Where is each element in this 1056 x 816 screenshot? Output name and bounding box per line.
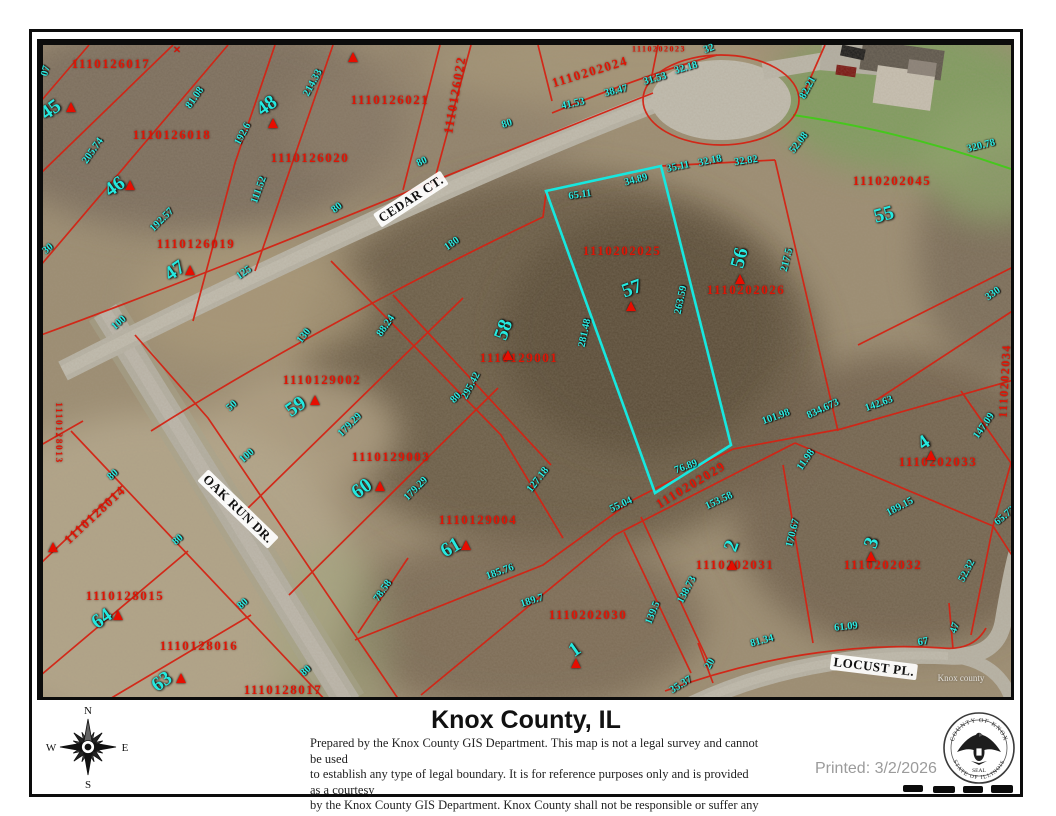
- parcel-number-label: 1110202023: [632, 45, 686, 54]
- dimension-label: 125: [234, 264, 253, 282]
- compass-n: N: [84, 705, 92, 717]
- parcel-number-label: 1110129004: [439, 512, 518, 528]
- compass-rose-icon: N S E W: [40, 704, 136, 790]
- parcel-number-label: 1110126017: [72, 56, 151, 72]
- cutoff-text-fragment: [963, 786, 983, 793]
- dimension-label: 834.673: [805, 397, 841, 421]
- parcel-number-label: 1110202026: [707, 282, 786, 298]
- survey-marker-triangle: ▲: [66, 100, 76, 115]
- dimension-label: 31.53: [642, 70, 668, 87]
- parcel-number-label: 1110202025: [583, 243, 662, 259]
- lot-number-label: 60: [347, 474, 377, 504]
- dimension-label: 67: [917, 636, 929, 649]
- parcel-number-label: 1110126021: [351, 92, 430, 108]
- dimension-label: 100: [109, 314, 128, 333]
- dimension-label: 111.52: [249, 175, 269, 205]
- dimension-label: 80: [500, 117, 513, 131]
- dimension-label: 80: [298, 663, 313, 678]
- dimension-label: 189.7: [519, 592, 545, 610]
- disclaimer-line: by the Knox County GIS Department. Knox …: [310, 798, 760, 816]
- map-title: Knox County, IL: [431, 706, 621, 735]
- survey-marker-triangle: ▲: [348, 50, 358, 65]
- dimension-label: 32: [702, 42, 716, 56]
- aerial-map: 1110126017111012601811101260191110126020…: [37, 39, 1014, 700]
- dimension-label: 100: [237, 447, 256, 466]
- survey-marker-triangle: ▲: [310, 393, 320, 408]
- dimension-label: 263.59: [673, 285, 690, 316]
- parcel-number-label: 1110129002: [283, 372, 362, 388]
- dimension-label: 80: [235, 596, 250, 611]
- dimension-label: 147.09: [971, 411, 997, 441]
- dimension-label: 78.58: [372, 578, 395, 604]
- street-name-label: CEDAR CT.: [373, 170, 449, 227]
- map-labels: 1110126017111012601811101260191110126020…: [40, 42, 1011, 697]
- survey-marker-triangle: ▲: [113, 608, 123, 623]
- dimension-label: 81.08: [184, 85, 207, 111]
- lot-number-label: 55: [871, 201, 896, 228]
- parcel-number-label: 1110202030: [549, 607, 628, 623]
- dimension-label: 35.37: [668, 674, 694, 696]
- cross-marker: ×: [173, 43, 181, 59]
- dimension-label: 52.32: [957, 558, 978, 584]
- survey-marker-triangle: ▲: [461, 538, 471, 553]
- compass-s: S: [85, 779, 91, 790]
- dimension-label: 185.76: [485, 562, 516, 582]
- compass-w: W: [46, 742, 57, 754]
- parcel-number-label: 1110128014: [61, 482, 129, 547]
- lot-number-label: 63: [147, 667, 177, 697]
- dimension-label: 30: [40, 241, 55, 256]
- dimension-label: 11.98: [795, 447, 817, 472]
- cutoff-text-fragment: [903, 785, 923, 792]
- survey-marker-triangle: ▲: [727, 558, 737, 573]
- dimension-label: 80: [105, 467, 120, 482]
- parcel-number-label: 1110129003: [352, 449, 431, 465]
- dimension-label: 80: [415, 155, 429, 169]
- parcel-number-label: 1110128013: [53, 402, 63, 463]
- disclaimer-line: Prepared by the Knox County GIS Departme…: [310, 736, 760, 767]
- parcel-number-label: 1110128015: [86, 588, 165, 604]
- dimension-label: 179.29: [402, 475, 430, 503]
- dimension-label: 82.21: [798, 75, 819, 101]
- dimension-label: 80: [170, 532, 185, 547]
- dimension-label: 192.6: [233, 121, 254, 147]
- dimension-label: 138.73: [675, 575, 698, 606]
- survey-marker-triangle: ▲: [503, 348, 513, 363]
- dimension-label: 217.5: [779, 247, 795, 273]
- street-name-label: OAK RUN DR.: [197, 469, 278, 548]
- dimension-label: 65.11: [568, 188, 592, 202]
- dimension-label: 47: [948, 621, 962, 634]
- imagery-credit-watermark: Knox county: [938, 673, 985, 683]
- survey-marker-triangle: ▲: [176, 671, 186, 686]
- dimension-label: 180: [442, 235, 461, 253]
- dimension-label: 101.98: [761, 407, 792, 427]
- dimension-label: 07: [39, 65, 52, 78]
- dimension-label: 127.18: [525, 465, 551, 495]
- lot-number-label: 56: [726, 245, 753, 270]
- dimension-label: 41.53: [560, 96, 585, 112]
- dimension-label: 81.34: [749, 633, 775, 650]
- dimension-label: 130: [295, 326, 313, 345]
- gis-map-printout: 1110126017111012601811101260191110126020…: [0, 0, 1056, 816]
- dimension-label: 320.78: [966, 137, 997, 155]
- dimension-label: 189.15: [885, 495, 916, 518]
- dimension-label: 330: [983, 285, 1002, 303]
- dimension-label: 142.63: [864, 394, 895, 414]
- parcel-number-label: 1110126018: [133, 127, 212, 143]
- dimension-label: 32.82: [734, 154, 759, 168]
- parcel-number-label: 1110202045: [853, 173, 932, 189]
- lot-number-label: 58: [490, 317, 518, 344]
- survey-marker-triangle: ▲: [926, 448, 936, 463]
- survey-marker-triangle: ▲: [125, 178, 135, 193]
- survey-marker-triangle: ▲: [735, 272, 745, 287]
- dimension-label: 88.24: [375, 313, 398, 339]
- dimension-label: 20: [703, 657, 718, 671]
- svg-text:SEAL: SEAL: [972, 768, 986, 774]
- parcel-number-label: 1110202034: [996, 344, 1014, 418]
- parcel-number-label: 1110128016: [160, 638, 239, 654]
- county-seal: COUNTY OF KNOX STATE OF ILLINOIS SEAL: [940, 708, 1018, 788]
- dimension-label: 205.74: [80, 136, 106, 166]
- dimension-label: 281.48: [577, 318, 594, 349]
- printed-date: Printed: 3/2/2026: [815, 760, 937, 778]
- disclaimer-line: to establish any type of legal boundary.…: [310, 767, 760, 798]
- parcel-number-label: 1110126019: [157, 236, 236, 252]
- dimension-label: 32.18: [673, 59, 699, 76]
- dimension-label: 35.11: [666, 159, 691, 175]
- dimension-label: 65.73: [992, 504, 1014, 528]
- dimension-label: 61.09: [834, 620, 859, 633]
- dimension-label: 38.47: [603, 83, 629, 99]
- survey-marker-triangle: ▲: [268, 116, 278, 131]
- dimension-label: 170.67: [784, 518, 802, 549]
- cutoff-text-fragment: [991, 785, 1013, 793]
- survey-marker-triangle: ▲: [866, 549, 876, 564]
- lot-number-label: 2: [719, 537, 744, 554]
- dimension-label: 214.33: [301, 68, 324, 99]
- parcel-number-label: 1110126022: [440, 55, 469, 135]
- parcel-number-label: 1110126020: [271, 150, 350, 166]
- dimension-label: 32.18: [697, 153, 722, 169]
- dimension-label: 179.29: [336, 411, 364, 439]
- cutoff-text-fragment: [933, 786, 955, 793]
- survey-marker-triangle: ▲: [571, 656, 581, 671]
- dimension-label: 55.04: [608, 495, 634, 515]
- dimension-label: 80: [329, 200, 344, 215]
- lot-number-label: 45: [37, 95, 66, 125]
- dimension-label: 139.5: [643, 600, 662, 626]
- survey-marker-triangle: ▲: [626, 299, 636, 314]
- disclaimer-text: Prepared by the Knox County GIS Departme…: [310, 736, 760, 816]
- parcel-number-label: 1110202033: [899, 454, 978, 470]
- survey-marker-triangle: ▲: [375, 479, 385, 494]
- lot-number-label: 59: [281, 392, 311, 422]
- dimension-label: 192.57: [148, 206, 176, 234]
- survey-marker-triangle: ▲: [48, 540, 58, 555]
- street-name-label: LOCUST PL.: [830, 654, 919, 681]
- dimension-label: 153.58: [704, 490, 735, 512]
- survey-marker-triangle: ▲: [185, 263, 195, 278]
- parcel-number-label: 1110128017: [244, 682, 323, 698]
- footer: Knox County, IL Prepared by the Knox Cou…: [32, 700, 1014, 788]
- compass-e: E: [122, 742, 129, 754]
- dimension-label: 50: [224, 398, 239, 413]
- dimension-label: 52.08: [787, 130, 810, 155]
- parcel-number-label: 1110129001: [480, 350, 559, 366]
- dimension-label: 34.89: [623, 172, 649, 189]
- parcel-number-label: 1110202032: [844, 557, 923, 573]
